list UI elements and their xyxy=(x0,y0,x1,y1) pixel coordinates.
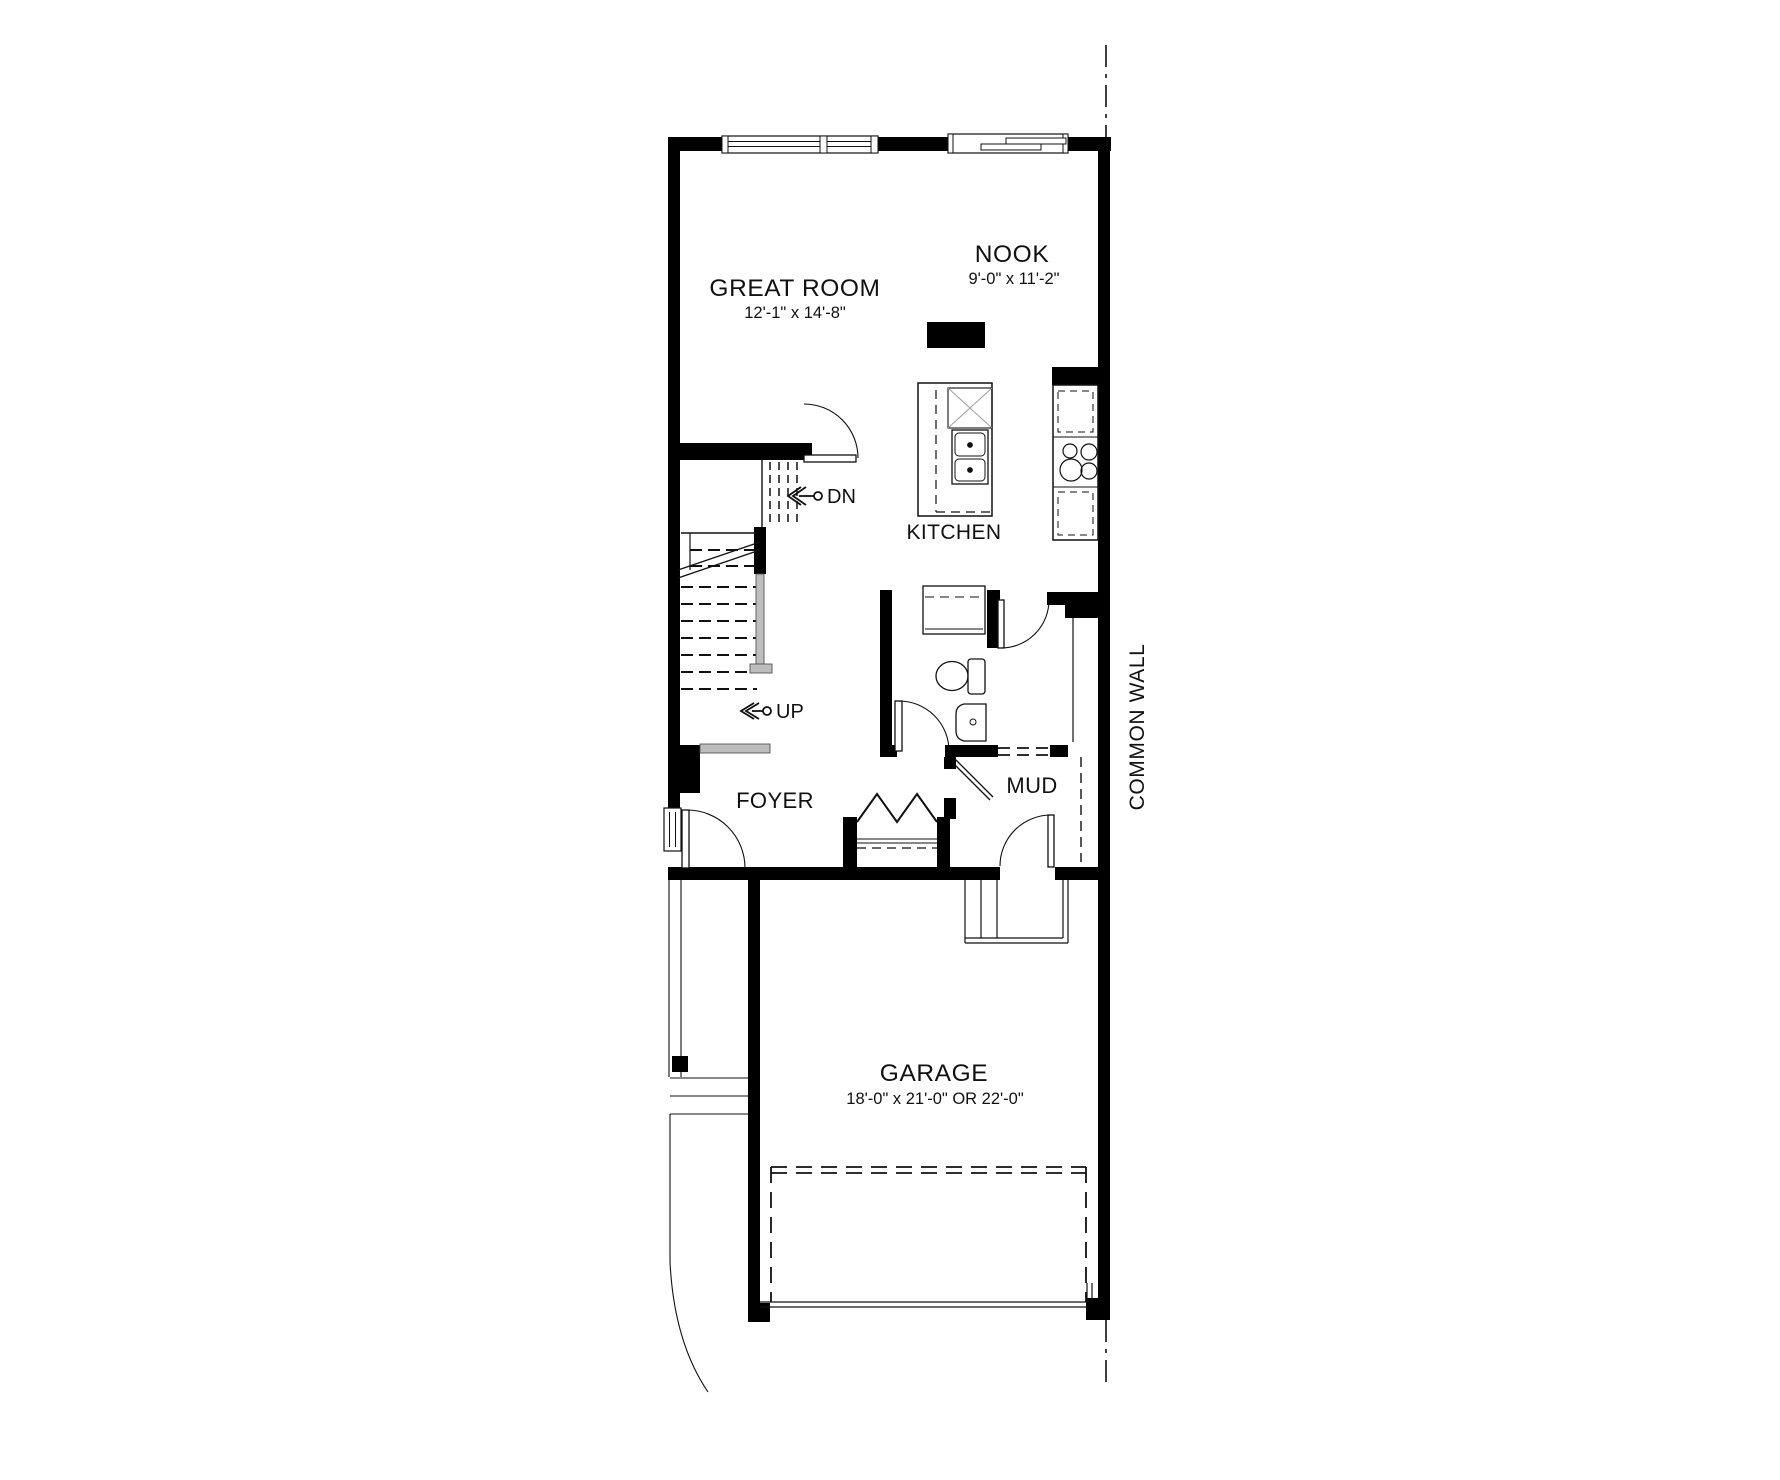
upper-cabinet-dash xyxy=(1058,391,1093,432)
mud-hall-wall xyxy=(1047,592,1098,605)
common-wall-label: COMMON WALL xyxy=(1126,644,1149,811)
toilet xyxy=(936,659,985,694)
mud-hall-block xyxy=(1065,605,1098,618)
door-swing-arc xyxy=(804,404,858,458)
great-room-dims: 12'-1" x 14'-8" xyxy=(744,304,846,322)
kitchen-counter-right xyxy=(1053,385,1098,540)
mud-label: MUD xyxy=(1006,773,1057,798)
wall-jog xyxy=(668,745,700,793)
mud-room-detail xyxy=(998,618,1081,862)
powder-door xyxy=(895,701,949,751)
up-label: UP xyxy=(776,701,804,723)
garage-door-sill xyxy=(760,1283,1092,1307)
driveway-curve xyxy=(670,1262,708,1392)
kitchen-island xyxy=(918,383,992,516)
door-swing-arc xyxy=(687,810,745,868)
foyer-mud-door xyxy=(952,759,993,800)
mud-door-jamb xyxy=(944,798,956,819)
wall-segment-south xyxy=(668,867,1000,880)
slider-panel xyxy=(981,144,1041,150)
nook-label: NOOK xyxy=(975,241,1050,268)
foyer-closet xyxy=(857,794,937,848)
pantry-cabinet xyxy=(923,586,985,634)
nook-kitchen-stub xyxy=(927,322,985,348)
porch-steps xyxy=(670,1078,748,1114)
wall-segment-south xyxy=(1055,867,1110,880)
foyer-label: FOYER xyxy=(736,788,814,813)
front-door-sidelite xyxy=(664,808,681,851)
wall-segment-left xyxy=(668,137,680,808)
kitchen-label: KITCHEN xyxy=(907,521,1002,544)
kitchen-mud-door xyxy=(998,600,1049,648)
dishwasher xyxy=(948,388,992,428)
stair-treads xyxy=(681,550,757,689)
nook-sliding-door xyxy=(948,134,1068,153)
dn-stair-treads xyxy=(770,462,797,526)
great-room-window xyxy=(722,136,878,153)
front-door xyxy=(682,810,745,868)
cased-opening-dash xyxy=(998,748,1050,755)
closet-jamb xyxy=(937,817,950,870)
slider-jamb xyxy=(948,134,953,153)
bathroom-sink xyxy=(956,704,986,741)
door-swing-arc xyxy=(1000,815,1051,866)
slider-panel xyxy=(1006,138,1066,144)
door-swing-arc xyxy=(1001,600,1049,648)
counter-top-stub xyxy=(1052,367,1098,385)
mud-garage-door xyxy=(1000,815,1054,867)
greatroom-south-wall xyxy=(675,443,812,460)
up-arrow xyxy=(741,703,771,719)
floor-plan: GREAT ROOM 12'-1" x 14'-8" NOOK 9'-0" x … xyxy=(0,0,1780,1480)
range-burners xyxy=(1060,444,1097,481)
powder-south-wall xyxy=(1050,745,1068,757)
garage-left-wall xyxy=(748,880,760,1303)
window-mullion xyxy=(722,136,728,153)
walls xyxy=(668,137,1111,1322)
dn-arrow xyxy=(788,487,822,505)
floor-plan-drawing: GREAT ROOM 12'-1" x 14'-8" NOOK 9'-0" x … xyxy=(0,0,1780,1480)
powder-left-wall xyxy=(880,590,892,757)
window-mullion xyxy=(820,136,827,153)
powder-south-wall xyxy=(945,745,998,757)
bifold-doors xyxy=(857,794,937,822)
garage-label: GARAGE xyxy=(880,1060,988,1087)
garage-steps xyxy=(965,880,1068,943)
great-room-label: GREAT ROOM xyxy=(709,275,880,302)
wall-foot xyxy=(1086,1298,1110,1320)
mud-door-jamb xyxy=(944,757,956,769)
closet-jamb xyxy=(843,817,857,870)
window-mullion xyxy=(871,136,878,153)
garage-dims: 18'-0" x 21'-0" OR 22'-0" xyxy=(846,1090,1024,1108)
wall-foot xyxy=(748,1303,770,1322)
basement-door xyxy=(804,404,858,462)
lower-cabinet-dash xyxy=(1058,492,1093,535)
kitchen-sink xyxy=(952,430,988,484)
porch-post xyxy=(672,1056,688,1072)
nook-dims: 9'-0" x 11'-2" xyxy=(968,270,1059,288)
garage-option-dash xyxy=(771,1167,1086,1302)
door-swing-arc xyxy=(899,701,949,751)
wall-segment-right xyxy=(1098,137,1110,1298)
wall-segment xyxy=(878,137,948,151)
dn-label: DN xyxy=(827,486,856,508)
porch xyxy=(669,880,748,1392)
stair-stringer-walls xyxy=(700,574,772,753)
